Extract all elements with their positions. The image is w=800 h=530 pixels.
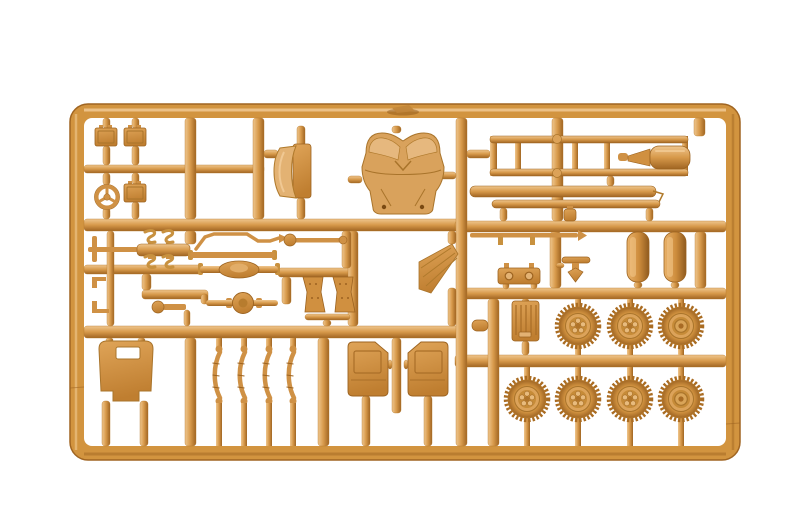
sprue-photo: [0, 0, 800, 530]
door-right: [408, 342, 448, 396]
vrail-right2-stub: [694, 118, 705, 136]
bed-strip-2: [492, 200, 660, 208]
vrail-left-top: [185, 118, 196, 219]
leg-panel-left: [102, 401, 110, 446]
cab-cowl: [362, 133, 444, 214]
vrail-doors-left: [318, 338, 329, 446]
photo-frame: [0, 0, 800, 530]
stub-door-left: [388, 360, 392, 369]
vrail-mid1-top: [253, 118, 264, 219]
stub-strip1: [607, 176, 614, 186]
side-tab: [472, 320, 488, 331]
rail-b-left: [84, 265, 202, 274]
vrail-wheel-left: [488, 299, 499, 446]
stub-strip2-left: [500, 208, 507, 221]
rail-mid-right: [455, 221, 726, 232]
rail-mid-left: [84, 219, 466, 231]
stub-funnel-bottom: [448, 288, 456, 326]
rail-c-left: [84, 326, 466, 338]
runner-doors: [392, 338, 401, 413]
vrail-left-bottom: [185, 338, 196, 446]
hatch-plate-2: [124, 125, 146, 146]
stub-seatback-bottom: [297, 198, 305, 219]
steering-wheel: [95, 185, 120, 210]
vrail-right1-low: [550, 232, 561, 288]
stub-lever: [184, 310, 190, 326]
stub-ladder-left: [467, 150, 490, 158]
tire-right: [664, 232, 686, 282]
stub-funnel-top: [448, 231, 456, 244]
stub-cab-left: [348, 176, 362, 183]
stub-grille-bottom: [522, 341, 529, 355]
vrail-right2-low: [695, 232, 706, 288]
stub-strip2-right: [646, 208, 653, 221]
hatch-plate-1: [95, 125, 117, 146]
runner-wheel-top: [103, 173, 110, 185]
rail-b-right: [455, 288, 726, 299]
stub-mudflap: [323, 320, 331, 326]
runner-plate1-mid: [103, 146, 110, 165]
stub-tire2-bottom: [671, 282, 679, 288]
vrail-center: [456, 118, 467, 446]
stub-tire1-bottom: [634, 282, 642, 288]
door-left: [348, 342, 388, 396]
stub-cab-top: [392, 126, 401, 133]
leg-panel-right: [140, 401, 148, 446]
radiator-grille: [512, 301, 539, 341]
stub-door-right: [404, 360, 408, 369]
rail-sub-top-left: [84, 165, 264, 173]
leg-door-left: [362, 396, 370, 446]
stub-anchor: [556, 263, 564, 268]
runner-plate3-bottom: [132, 202, 139, 219]
hatch-plate-3: [124, 181, 146, 202]
bar-mudflap: [305, 314, 350, 320]
rail-inner-box: [142, 290, 208, 299]
rail-b-left2: [278, 268, 351, 277]
leg-door-right: [424, 396, 432, 446]
tire-left: [627, 232, 649, 282]
stub-hookbar: [185, 231, 196, 244]
runner-plate2-mid: [132, 146, 139, 165]
stub-axle-left: [142, 274, 151, 290]
stub-axle-right: [282, 277, 291, 304]
